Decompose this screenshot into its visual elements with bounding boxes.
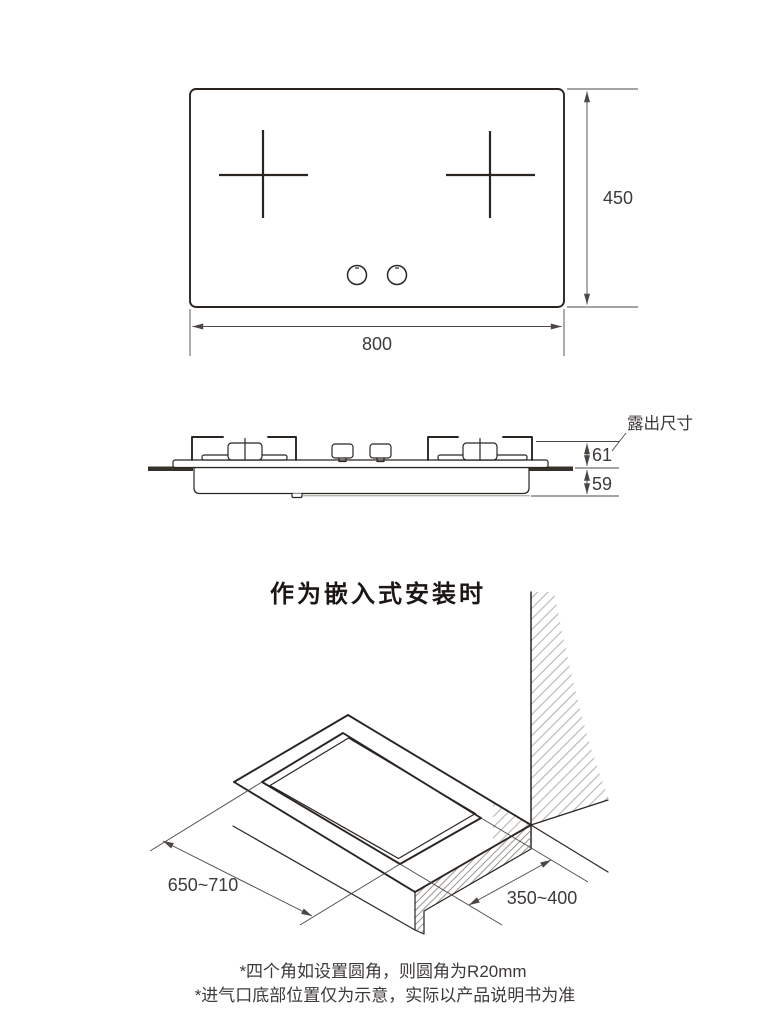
exposed-dimension-label: 露出尺寸	[627, 414, 693, 433]
control-knob-right	[388, 266, 407, 285]
wall-hatch	[531, 592, 609, 825]
side-view: 61 59 露出尺寸	[148, 414, 693, 498]
control-knob-left	[348, 266, 367, 285]
installation-diagram: 450 800	[0, 0, 768, 1024]
exposed-height-dimensions: 61 59 露出尺寸	[531, 414, 693, 496]
below-counter-dim-label: 59	[592, 474, 612, 494]
glass-top-profile	[173, 460, 548, 468]
height-dim-label: 450	[603, 188, 633, 208]
embedded-install-title: 作为嵌入式安装时	[270, 580, 486, 608]
footnotes: *四个角如设置圆角，则圆角为R20mm *进气口底部位置仅为示意，实际以产品说明…	[195, 962, 576, 1005]
footnote-gas-inlet: *进气口底部位置仅为示意，实际以产品说明书为准	[195, 986, 576, 1005]
exposed-label-leader	[612, 433, 626, 451]
right-pan-support	[428, 437, 532, 460]
cooktop-installation-diagram-page: 450 800	[0, 0, 768, 1024]
cutout-depth-label: 350~400	[507, 888, 578, 908]
width-dim-label: 800	[362, 334, 392, 354]
top-view: 450 800	[190, 89, 638, 356]
knob-profile-left	[332, 444, 353, 462]
height-dimension: 450	[567, 89, 638, 307]
embedded-install-view: 作为嵌入式安装时	[150, 580, 609, 934]
knob-profile-right	[370, 444, 391, 462]
width-dimension: 800	[190, 309, 564, 356]
cutout-opening	[262, 733, 481, 864]
footnote-rounded-corner: *四个角如设置圆角，则圆角为R20mm	[239, 962, 526, 981]
left-pan-support	[192, 437, 296, 460]
cooktop-body-profile	[194, 468, 529, 494]
above-counter-dim-label: 61	[592, 445, 612, 465]
cooktop-outline-top-view	[190, 89, 564, 307]
gas-inlet-bump	[292, 494, 302, 498]
cutout-length-label: 650~710	[168, 875, 239, 895]
